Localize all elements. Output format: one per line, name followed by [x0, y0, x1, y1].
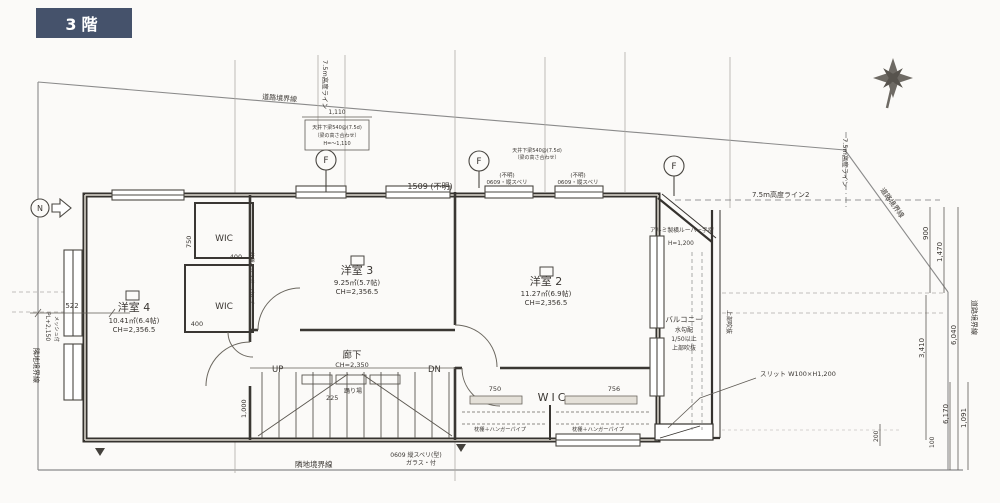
dim-900: 900: [922, 227, 930, 240]
neighbor-boundary-left-label: 隣地境界線: [32, 348, 41, 383]
stairs: [258, 372, 452, 438]
marker-f-3: F: [671, 162, 676, 172]
marker-left-letter: N: [37, 204, 43, 213]
dim-1509: 1509 (不明): [407, 182, 452, 191]
room2-name: 洋室 2: [530, 274, 563, 288]
room3-name: 洋室 3: [341, 263, 374, 277]
balcony-note-3: 上部吹抜: [672, 344, 696, 352]
dimension-lines: [30, 117, 968, 470]
louver-note-2: H=1,200: [668, 241, 694, 247]
dim-400-b: 400: [191, 320, 203, 328]
height-line-right-label: 7.5m高度ライン: [841, 138, 850, 187]
window-b-label: 0609・縦スベリ: [557, 178, 598, 186]
dim-1091: 1,091: [960, 408, 968, 428]
dim-750-b: 750: [489, 385, 501, 393]
dim-200: 200: [873, 430, 880, 442]
dim-522: 522: [65, 302, 78, 310]
room4-name: 洋室 4: [118, 300, 151, 314]
balcony-name: バルコニー: [665, 315, 702, 324]
dim-400-a: 400: [230, 253, 242, 261]
wic-upper-label: WIC: [215, 234, 233, 244]
window-a-label: 0609・縦スベリ: [486, 178, 527, 186]
beam-note-2-line2: （梁の高さ合わせ）: [514, 154, 559, 161]
closet-rod-note-a: 枕棚＋ハンガーパイプ: [474, 425, 527, 433]
beam-note-1-line2: （梁の高さ合わせ）: [314, 132, 359, 139]
marker-f-2: F: [476, 157, 481, 167]
grid-lines: [12, 50, 944, 481]
north-arrow-icon: [873, 58, 913, 108]
dim-1110: 1,110: [328, 109, 345, 116]
balcony-note-1: 水勾配: [675, 326, 693, 334]
dim-6170: 6,170: [942, 404, 950, 424]
window-a-tag: (不明): [499, 172, 514, 179]
site-boundary-lines: [38, 82, 963, 470]
louver-note-1: アルミ製横ルーバー手摺: [650, 226, 714, 234]
dim-3410: 3,410: [918, 338, 926, 358]
closet-rod-note-b: 枕棚＋ハンガーパイプ: [572, 425, 625, 433]
dim-6040: 6,040: [950, 325, 958, 345]
wic-lower-label: WIC: [215, 302, 233, 312]
room2-ch: CH=2,356.5: [525, 299, 568, 307]
dim-750-vertical: 750: [185, 236, 193, 248]
slit-note: スリット W100×H1,200: [760, 370, 836, 378]
window-bottom-label-1: 0609 縦スベリ(型): [390, 451, 441, 459]
floorplan-page: 3階: [0, 0, 1000, 503]
beam-note-1-line1: 天井下梁540@(7.5d): [312, 124, 362, 131]
wic-bottom-label: WIC: [538, 391, 569, 404]
window-b-tag: (不明): [570, 172, 585, 179]
stairs-dn-label: DN: [428, 365, 441, 375]
beam-note-2-line1: 天井下梁540@(7.5d): [512, 147, 562, 154]
mesh-note-2: メッシュ付: [53, 316, 61, 342]
floorplan-drawing: F F F N 道路境界線 道路境界線 道路境界線 隣地境: [0, 0, 1000, 503]
height-line-2-label: 7.5m高度ライン2: [752, 190, 809, 199]
marker-f-1: F: [323, 156, 328, 166]
hallway-ch: CH=2,350: [335, 361, 368, 369]
mesh-note-1: PL+2,150: [44, 312, 51, 341]
dim-1000: 1,000: [240, 399, 248, 418]
neighbor-boundary-bottom-label: 隣地境界線: [295, 459, 333, 469]
room2-area: 11.27㎡(6.9帖): [521, 289, 572, 298]
road-boundary-top-label: 道路境界線: [262, 92, 298, 104]
beam-note-1-line3: H=～1,110: [323, 141, 350, 147]
dim-1470: 1,470: [936, 242, 944, 262]
road-boundary-right-label: 道路境界線: [970, 300, 979, 335]
hallway-name: 廊下: [342, 349, 361, 361]
room3-ch: CH=2,356.5: [336, 288, 379, 296]
room3-area: 9.25㎡(5.7帖): [334, 278, 380, 287]
window-bottom-label-2: ガラス・付: [406, 459, 436, 467]
dim-100: 100: [929, 436, 936, 448]
dim-756: 756: [608, 385, 620, 393]
balcony-note-2: 1/50以上: [671, 335, 696, 343]
balcony-side-note: 上部吹抜: [725, 310, 733, 334]
room4-area: 10.41㎡(6.4帖): [109, 316, 160, 325]
stairs-tread-dim: 225: [326, 394, 338, 402]
stairs-up-label: UP: [272, 365, 283, 375]
height-line-top-label: 7.5m高度ライン: [321, 60, 330, 109]
stairs-landing-label: 踊り場: [344, 387, 362, 395]
room4-ch: CH=2,356.5: [113, 326, 156, 334]
closet-rod-note-vertical: 枕棚＋ハンガーパイプ: [248, 252, 256, 305]
